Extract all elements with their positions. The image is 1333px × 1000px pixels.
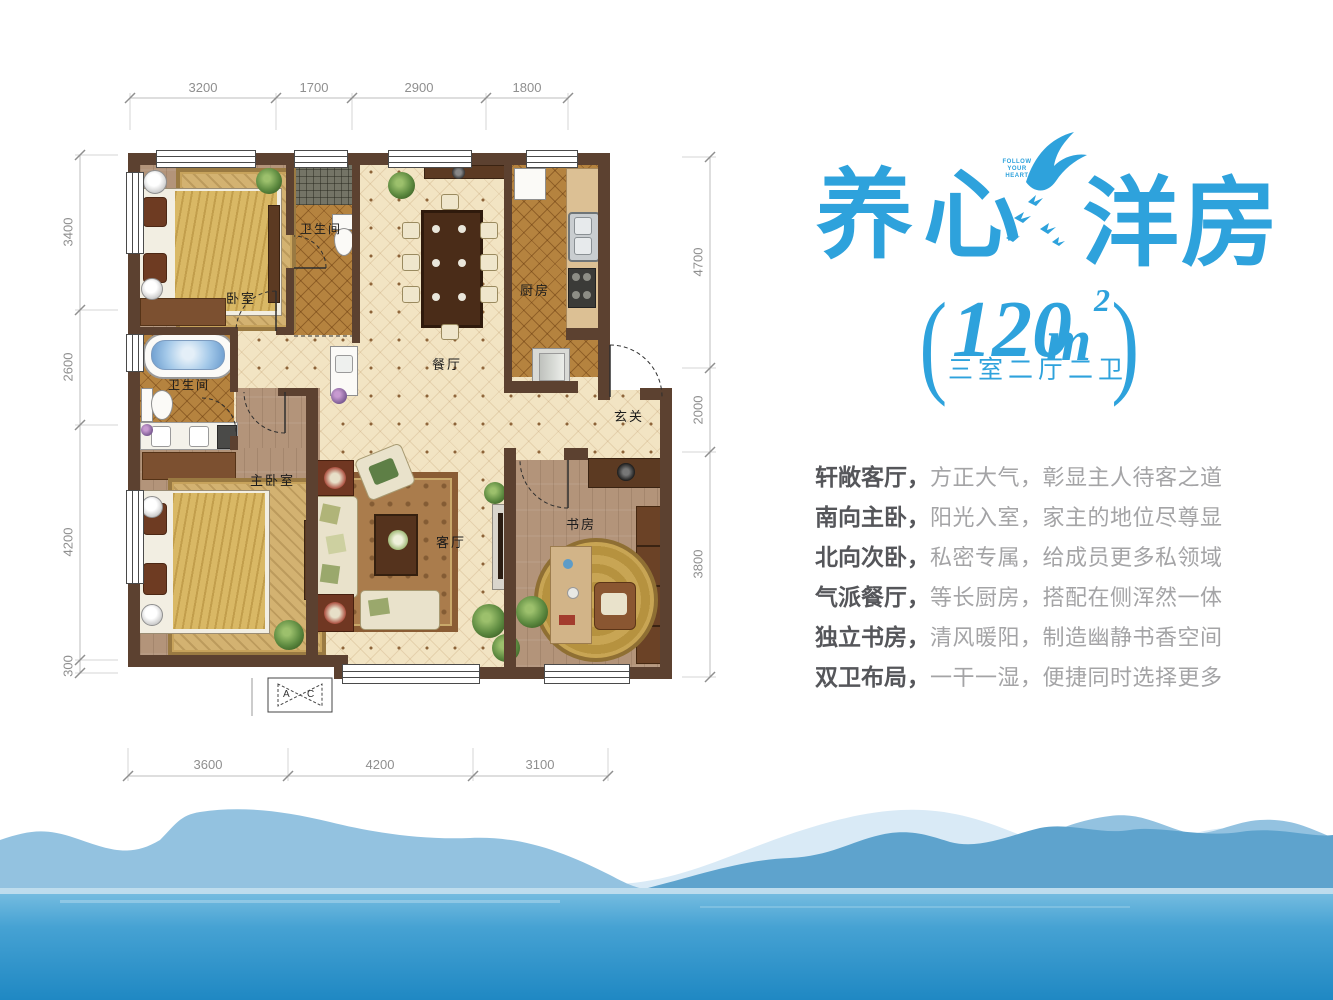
feature-lead: 南向主卧， — [815, 498, 930, 532]
birds-icon — [992, 126, 1104, 252]
dim-left-2: 2600 — [61, 353, 76, 382]
ac-label-a: A — [283, 689, 290, 700]
feature-row: 气派餐厅， 等长厨房，搭配在侧浑然一体 — [815, 578, 1265, 605]
ac-label-c: C — [307, 689, 314, 700]
room-label-dining: 餐厅 — [432, 354, 462, 373]
dim-top-1: 3200 — [189, 80, 218, 95]
poster: 卧室 卫生间 餐厅 厨房 玄关 卫生间 主卧室 客厅 书房 — [0, 0, 1333, 1000]
feature-lead: 独立书房， — [815, 618, 930, 652]
feature-row: 独立书房， 清风暖阳，制造幽静书香空间 — [815, 618, 1265, 645]
dim-right-1: 4700 — [691, 248, 706, 277]
feature-body: 等长厨房，搭配在侧浑然一体 — [930, 580, 1223, 612]
feature-body: 一干一湿，便捷同时选择更多 — [930, 660, 1223, 692]
room-label-kitchen: 厨房 — [520, 280, 550, 299]
room-label-living: 客厅 — [436, 532, 466, 551]
room-label-bath-left: 卫生间 — [168, 376, 210, 393]
dim-bottom-3: 3100 — [526, 757, 555, 772]
dim-top-3: 2900 — [405, 80, 434, 95]
area-paren-open: ( — [919, 286, 947, 402]
dim-right-2: 2000 — [691, 396, 706, 425]
layout-subtitle: 三室二厅二卫 — [948, 350, 1128, 386]
feature-body: 清风暖阳，制造幽静书香空间 — [930, 620, 1223, 652]
dim-right-3: 3800 — [691, 550, 706, 579]
feature-row: 北向次卧， 私密专属，给成员更多私领域 — [815, 538, 1265, 565]
feature-lead: 轩敞客厅， — [815, 458, 930, 492]
room-label-bedroom: 卧室 — [226, 288, 256, 307]
feature-row: 双卫布局， 一干一湿，便捷同时选择更多 — [815, 658, 1265, 685]
room-label-entry: 玄关 — [614, 406, 644, 425]
feature-lead: 气派餐厅， — [815, 578, 930, 612]
dim-bottom-2: 4200 — [366, 757, 395, 772]
dim-left-1: 3400 — [61, 218, 76, 247]
feature-lead: 双卫布局， — [815, 658, 930, 692]
room-label-study: 书房 — [566, 514, 596, 533]
mountain-water-illustration — [0, 780, 1333, 1000]
plan-linework — [0, 0, 760, 800]
feature-lead: 北向次卧， — [815, 538, 930, 572]
feature-body: 方正大气，彰显主人待客之道 — [930, 460, 1223, 492]
feature-list: 轩敞客厅， 方正大气，彰显主人待客之道 南向主卧， 阳光入室，家主的地位尽尊显 … — [815, 458, 1265, 698]
feature-body: 私密专属，给成员更多私领域 — [930, 540, 1223, 572]
room-label-master: 主卧室 — [250, 470, 295, 489]
room-label-bath-top: 卫生间 — [300, 220, 342, 237]
feature-body: 阳光入室，家主的地位尽尊显 — [930, 500, 1223, 532]
area-exponent: 2 — [1094, 284, 1110, 316]
dim-top-4: 1800 — [513, 80, 542, 95]
dim-left-3: 4200 — [61, 528, 76, 557]
dim-left-4: 300 — [61, 655, 76, 677]
dim-top-2: 1700 — [300, 80, 329, 95]
dim-bottom-1: 3600 — [194, 757, 223, 772]
feature-row: 南向主卧， 阳光入室，家主的地位尽尊显 — [815, 498, 1265, 525]
hero-title-right: 洋房 — [1082, 176, 1280, 273]
feature-row: 轩敞客厅， 方正大气，彰显主人待客之道 — [815, 458, 1265, 485]
floor-plan: 卧室 卫生间 餐厅 厨房 玄关 卫生间 主卧室 客厅 书房 — [0, 0, 760, 800]
